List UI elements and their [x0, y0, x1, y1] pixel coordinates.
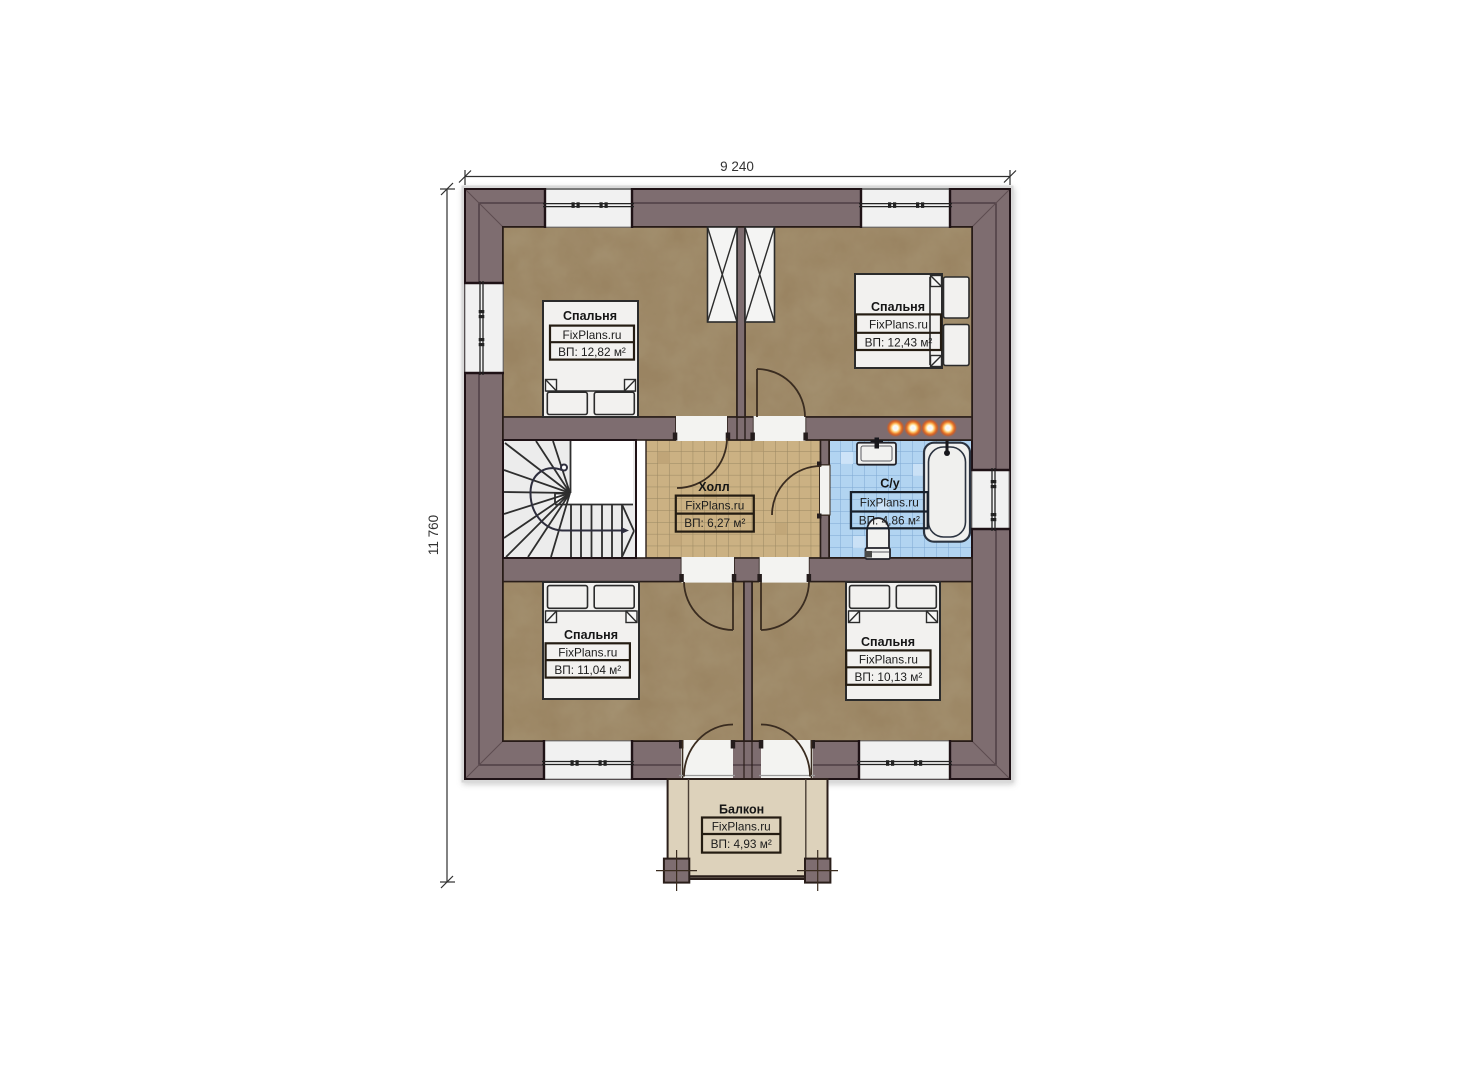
svg-text:ВП: 12,43 м²: ВП: 12,43 м²	[865, 335, 933, 349]
svg-text:FixPlans.ru: FixPlans.ru	[558, 646, 617, 660]
svg-text:ВП: 6,27 м²: ВП: 6,27 м²	[684, 516, 745, 530]
svg-text:9 240: 9 240	[720, 159, 754, 174]
svg-text:Спальня: Спальня	[861, 635, 915, 649]
svg-text:FixPlans.ru: FixPlans.ru	[562, 328, 621, 342]
svg-text:ВП: 10,13 м²: ВП: 10,13 м²	[855, 670, 923, 684]
svg-text:FixPlans.ru: FixPlans.ru	[869, 318, 928, 332]
svg-text:ВП: 11,04 м²: ВП: 11,04 м²	[554, 663, 621, 677]
svg-text:ВП: 4,86 м²: ВП: 4,86 м²	[859, 513, 920, 527]
svg-text:С/у: С/у	[880, 477, 900, 491]
svg-text:Спальня: Спальня	[563, 309, 617, 323]
svg-text:ВП: 4,93 м²: ВП: 4,93 м²	[711, 837, 772, 851]
svg-text:FixPlans.ru: FixPlans.ru	[712, 819, 771, 833]
svg-text:11 760: 11 760	[426, 515, 441, 555]
svg-text:Спальня: Спальня	[871, 300, 925, 314]
svg-text:Холл: Холл	[698, 480, 729, 494]
svg-text:FixPlans.ru: FixPlans.ru	[859, 653, 918, 667]
svg-text:Балкон: Балкон	[719, 803, 764, 817]
svg-text:FixPlans.ru: FixPlans.ru	[685, 498, 744, 512]
svg-text:ВП: 12,82 м²: ВП: 12,82 м²	[558, 345, 626, 359]
svg-text:FixPlans.ru: FixPlans.ru	[860, 496, 919, 510]
svg-text:Спальня: Спальня	[564, 628, 618, 642]
